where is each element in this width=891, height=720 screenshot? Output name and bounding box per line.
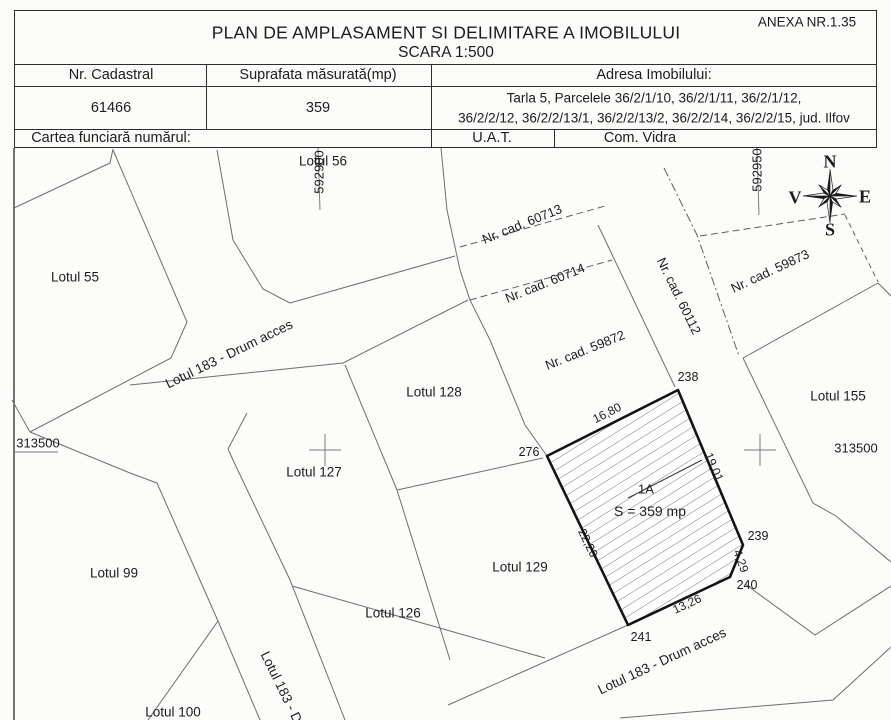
page-title: PLAN DE AMPLASAMENT SI DELIMITARE A IMOB… xyxy=(212,23,681,44)
table-rule-h2 xyxy=(15,86,876,87)
col-header-cadastral: Nr. Cadastral xyxy=(69,67,154,83)
cadastral-plan-page: PLAN DE AMPLASAMENT SI DELIMITARE A IMOB… xyxy=(0,0,891,720)
header-table: PLAN DE AMPLASAMENT SI DELIMITARE A IMOB… xyxy=(14,10,877,148)
compass-west-label: V xyxy=(789,188,802,209)
point-label-239: 239 xyxy=(748,529,769,543)
cadastral-number-value: 61466 xyxy=(91,100,131,116)
address-line-2: 36/2/2/12, 36/2/2/13/1, 36/2/2/13/2, 36/… xyxy=(458,111,850,126)
col-header-address: Adresa Imobilului: xyxy=(596,67,711,83)
lot-label-129: Lotul 129 xyxy=(492,560,548,575)
parcel-1a-name: 1A xyxy=(638,482,654,497)
point-label-240: 240 xyxy=(737,578,758,592)
table-rule-v3 xyxy=(554,129,555,147)
table-rule-v2 xyxy=(431,64,432,147)
grid-label-313500-right: 313500 xyxy=(834,441,877,456)
measured-area-value: 359 xyxy=(306,100,330,116)
point-label-238: 238 xyxy=(678,370,699,384)
lot-label-99: Lotul 99 xyxy=(90,566,138,581)
lot-label-127: Lotul 127 xyxy=(286,465,342,480)
lot-label-55: Lotul 55 xyxy=(51,270,99,285)
lot-label-100: Lotul 100 xyxy=(145,705,201,720)
commune-value: Com. Vidra xyxy=(604,130,676,146)
point-label-241: 241 xyxy=(631,630,652,644)
uat-label: U.A.T. xyxy=(472,130,511,146)
grid-label-592950: 592950 xyxy=(750,148,765,191)
address-line-1: Tarla 5, Parcelele 36/2/1/10, 36/2/1/11,… xyxy=(507,91,802,106)
grid-label-592900: 592900 xyxy=(312,150,327,193)
point-label-276: 276 xyxy=(519,445,540,459)
table-rule-v1 xyxy=(206,64,207,129)
compass-rose xyxy=(803,169,857,223)
col-header-area: Suprafata măsurată(mp) xyxy=(239,67,396,83)
parcel-1a-area: S = 359 mp xyxy=(614,503,686,519)
lot-label-155: Lotul 155 xyxy=(810,389,866,404)
compass-east-label: E xyxy=(859,187,871,208)
table-rule-h1 xyxy=(15,64,876,65)
parcel-boundaries xyxy=(12,148,891,720)
page-scale: SCARA 1:500 xyxy=(398,44,494,62)
cadastral-map-drawing xyxy=(0,148,891,720)
compass-north-label: N xyxy=(824,152,837,173)
lot-label-128: Lotul 128 xyxy=(406,385,462,400)
annex-number: ANEXA NR.1.35 xyxy=(758,15,856,30)
lot-label-126: Lotul 126 xyxy=(365,606,421,621)
grid-label-313500-left: 313500 xyxy=(16,436,59,451)
compass-south-label: S xyxy=(825,220,835,241)
land-book-label: Cartea funciară numărul: xyxy=(31,130,191,146)
